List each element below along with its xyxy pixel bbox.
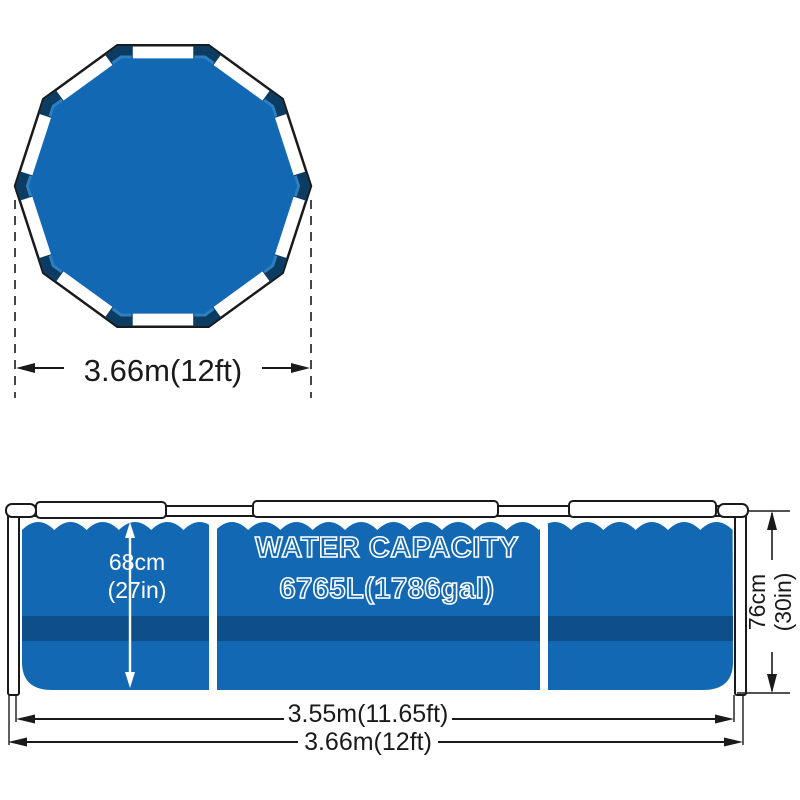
top-rail (6, 501, 748, 518)
diameter-arrow-left (16, 363, 35, 373)
liner-width-label: 3.55m(11.65ft) (288, 700, 449, 728)
top-rail-cap-right (718, 504, 748, 517)
pool-top-view: 3.66m(12ft) (0, 0, 340, 410)
capacity-title: WATER CAPACITY (255, 532, 519, 564)
pool-dark-band (22, 616, 733, 641)
pool-side-view: 68cm (27in) WATER CAPACITY 6765L(1786gal… (0, 490, 800, 800)
water-depth-cm-label: 68cm (109, 549, 165, 575)
liner-width-arrow-right (715, 715, 734, 724)
top-rail-sleeve-1 (36, 502, 166, 518)
frame-height-arrow-up (767, 511, 777, 530)
diameter-label: 3.66m(12ft) (84, 353, 243, 388)
liner-width-arrow-left (16, 715, 35, 724)
water-depth-in-label: (27in) (108, 577, 167, 603)
top-rail-sleeve-2 (253, 501, 498, 517)
frame-height-in-label: (30in) (770, 573, 796, 632)
frame-width-arrow-right (724, 738, 743, 747)
frame-width-arrow-left (8, 738, 27, 747)
pool-water-top (32, 61, 295, 311)
pool-seam-left (209, 524, 217, 690)
top-rail-sleeve-3 (569, 501, 716, 517)
pool-leg-left (8, 508, 19, 695)
frame-height-cm-label: 76cm (744, 574, 770, 630)
pool-seam-right (540, 524, 548, 690)
pool-dimension-diagram: 3.66m(12ft) 68cm (27in) (0, 0, 800, 800)
diameter-arrow-right (291, 363, 310, 373)
top-rail-cap-left (6, 504, 36, 517)
frame-height-arrow-down (767, 674, 777, 693)
capacity-value: 6765L(1786gal) (280, 573, 495, 605)
frame-width-label: 3.66m(12ft) (304, 728, 432, 756)
